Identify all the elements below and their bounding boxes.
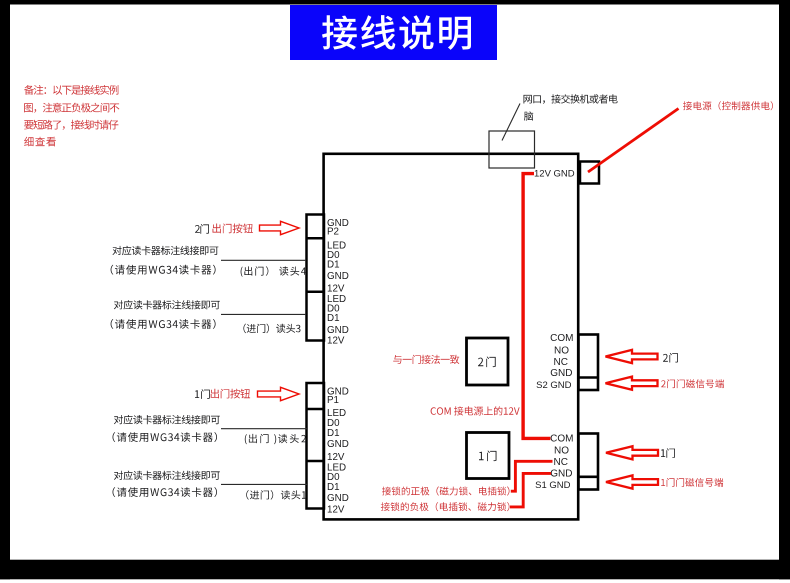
svg-text:COM: COM xyxy=(550,333,573,344)
svg-text:D1: D1 xyxy=(327,482,340,493)
svg-text:COM: COM xyxy=(550,433,573,444)
svg-text:S1 GND: S1 GND xyxy=(535,480,571,491)
svg-text:S2 GND: S2 GND xyxy=(536,380,572,391)
svg-text:12V GND: 12V GND xyxy=(534,169,575,180)
svg-text:P2: P2 xyxy=(327,226,339,237)
svg-text:NC: NC xyxy=(554,357,568,368)
svg-text:NO: NO xyxy=(554,445,569,456)
svg-text:12V: 12V xyxy=(327,336,345,347)
svg-text:NC: NC xyxy=(554,457,568,468)
svg-text:GND: GND xyxy=(327,271,349,282)
svg-text:GND: GND xyxy=(550,468,572,479)
svg-text:P1: P1 xyxy=(327,395,339,406)
svg-text:NO: NO xyxy=(554,346,569,357)
svg-text:GND: GND xyxy=(550,368,572,379)
svg-text:D1: D1 xyxy=(327,260,340,271)
svg-text:12V: 12V xyxy=(327,452,345,463)
svg-text:GND: GND xyxy=(327,325,349,336)
svg-text:12V: 12V xyxy=(327,505,345,516)
svg-text:D1: D1 xyxy=(327,428,340,439)
svg-text:12V: 12V xyxy=(327,283,345,294)
svg-text:GND: GND xyxy=(327,439,349,450)
svg-text:D1: D1 xyxy=(327,313,340,324)
svg-text:GND: GND xyxy=(327,493,349,504)
